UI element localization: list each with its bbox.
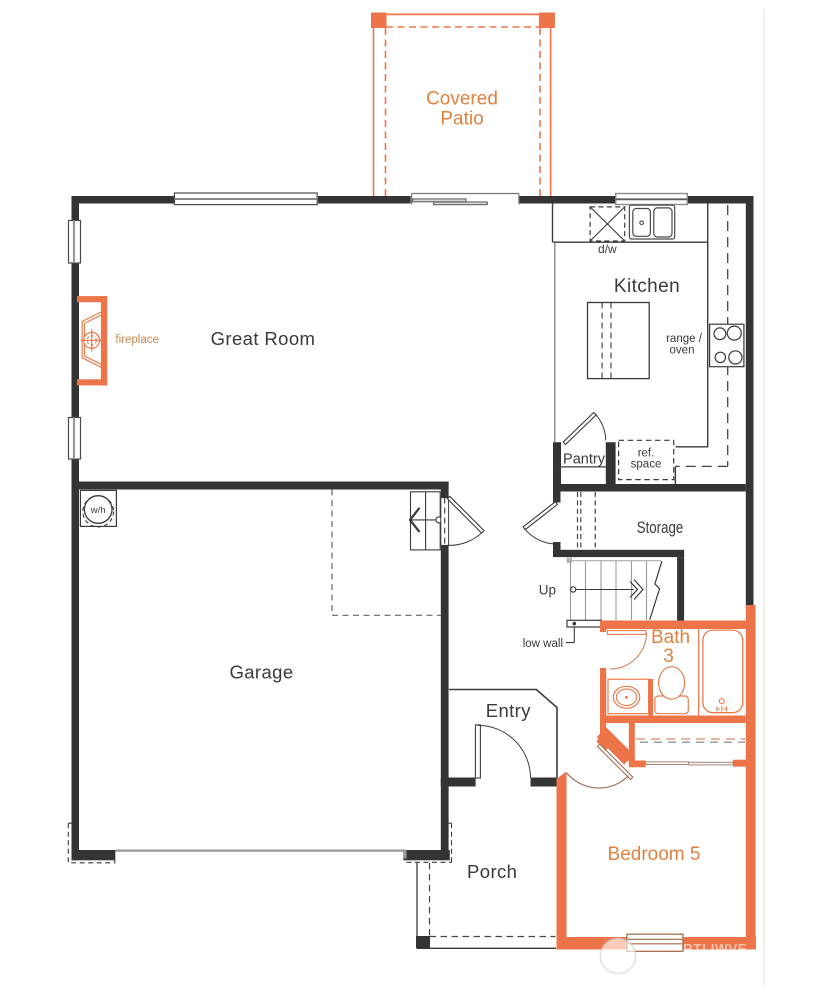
svg-text:Bedroom 5: Bedroom 5	[608, 844, 701, 865]
svg-text:3: 3	[663, 646, 674, 667]
svg-text:space: space	[631, 458, 662, 470]
svg-text:RTLIWVE: RTLIWVE	[683, 942, 747, 957]
svg-text:Up: Up	[539, 582, 556, 597]
svg-text:range /: range /	[666, 333, 703, 345]
svg-text:w/h: w/h	[90, 505, 106, 516]
svg-text:Kitchen: Kitchen	[614, 276, 680, 297]
svg-text:Entry: Entry	[486, 700, 532, 721]
svg-text:Patio: Patio	[440, 109, 483, 130]
svg-text:fireplace: fireplace	[115, 334, 158, 346]
svg-text:low wall: low wall	[523, 638, 563, 650]
svg-text:oven: oven	[670, 345, 695, 357]
svg-text:Pantry: Pantry	[563, 452, 606, 468]
svg-text:Garage: Garage	[229, 662, 293, 683]
svg-text:Great Room: Great Room	[211, 328, 316, 349]
svg-text:Porch: Porch	[467, 861, 517, 882]
svg-text:d/w: d/w	[598, 242, 617, 256]
svg-text:Bath: Bath	[651, 627, 690, 648]
svg-text:Covered: Covered	[426, 89, 498, 110]
svg-text:Storage: Storage	[637, 519, 683, 538]
